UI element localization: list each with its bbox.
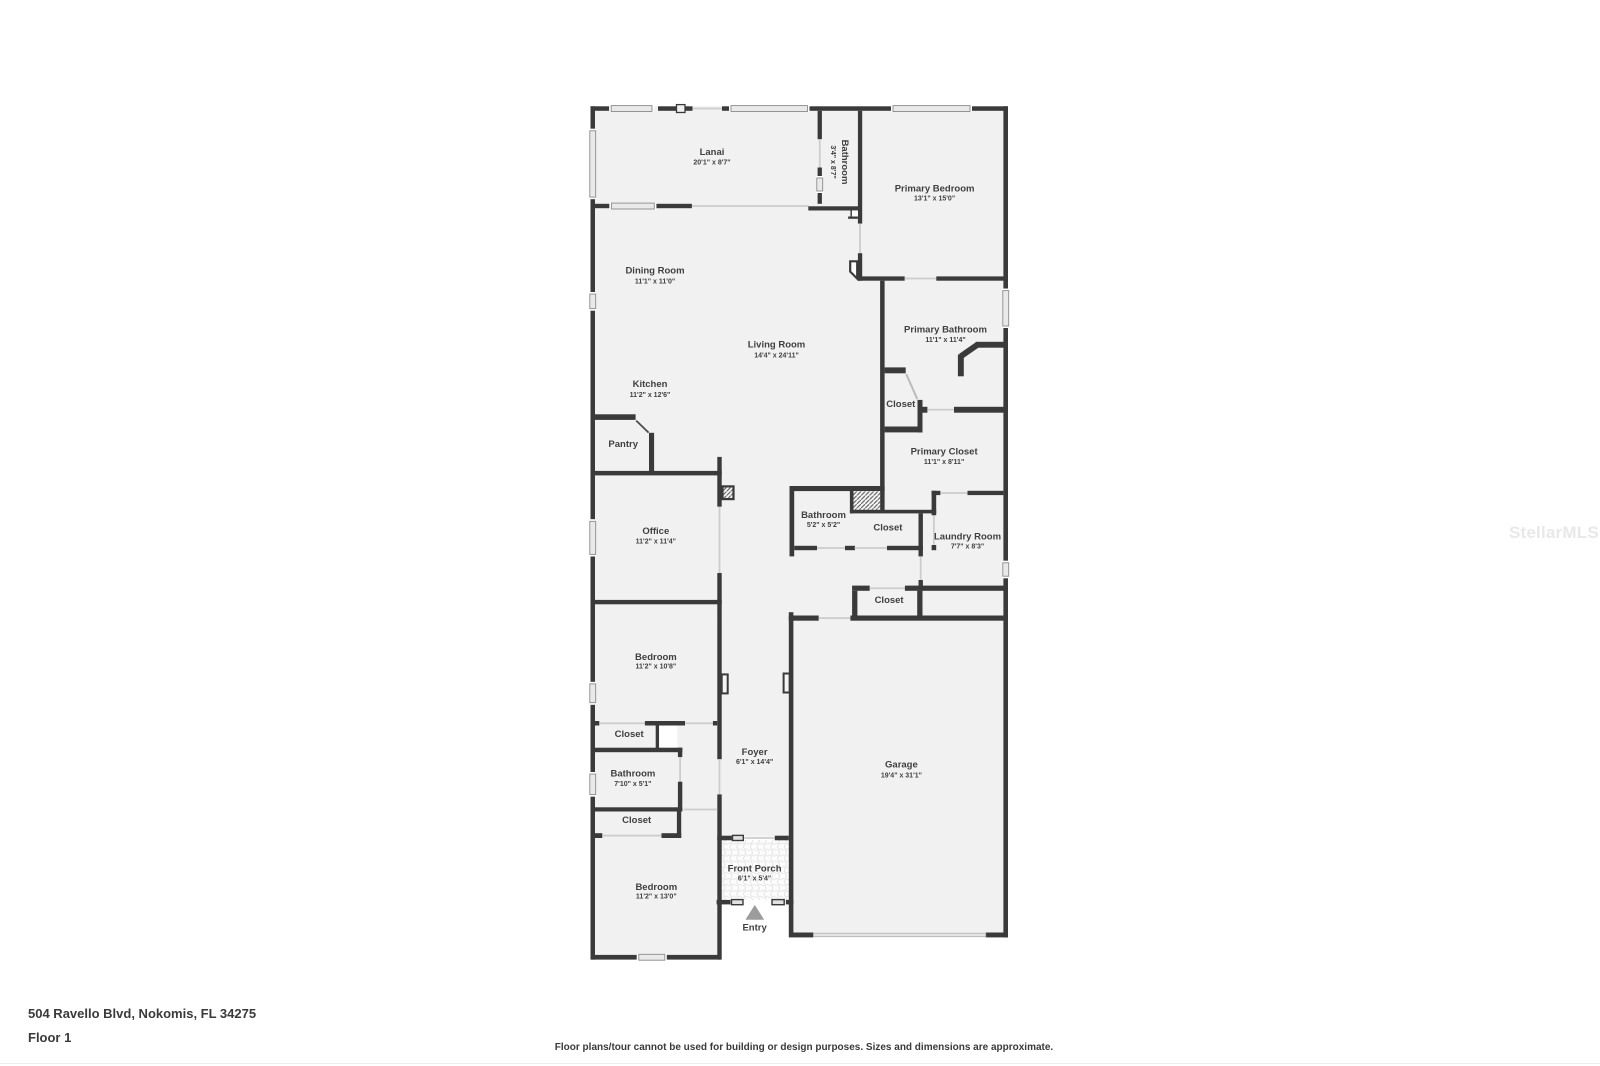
svg-text:Closet: Closet xyxy=(875,595,905,606)
svg-text:11'1" x 11'4": 11'1" x 11'4" xyxy=(925,337,965,344)
svg-text:Closet: Closet xyxy=(615,729,645,740)
svg-text:Bathroom: Bathroom xyxy=(839,140,850,185)
svg-text:Entry: Entry xyxy=(742,922,767,933)
svg-text:19'4" x 31'1": 19'4" x 31'1" xyxy=(881,772,922,779)
svg-text:11'1" x 8'11": 11'1" x 8'11" xyxy=(924,459,964,466)
svg-text:13'1" x 15'0": 13'1" x 15'0" xyxy=(914,196,955,203)
svg-text:5'2" x 5'2": 5'2" x 5'2" xyxy=(807,522,840,529)
svg-text:Primary Bedroom: Primary Bedroom xyxy=(895,183,975,194)
svg-text:Pantry: Pantry xyxy=(608,439,638,450)
svg-text:11'2" x 13'0": 11'2" x 13'0" xyxy=(636,894,677,901)
svg-text:Living Room: Living Room xyxy=(748,340,806,351)
svg-text:7'10" x 5'1": 7'10" x 5'1" xyxy=(614,781,651,788)
svg-text:11'2" x 12'6": 11'2" x 12'6" xyxy=(630,392,671,399)
svg-text:Laundry Room: Laundry Room xyxy=(934,532,1001,543)
svg-text:Primary Bathroom: Primary Bathroom xyxy=(904,324,987,335)
svg-text:11'1" x 11'0": 11'1" x 11'0" xyxy=(635,278,675,285)
svg-text:Bathroom: Bathroom xyxy=(801,510,846,521)
svg-text:Bedroom: Bedroom xyxy=(635,652,677,663)
svg-text:Primary Closet: Primary Closet xyxy=(911,447,979,458)
svg-text:Closet: Closet xyxy=(873,523,903,534)
svg-text:Front Porch: Front Porch xyxy=(728,863,782,874)
svg-text:14'4" x 24'11": 14'4" x 24'11" xyxy=(754,352,799,359)
svg-text:Bathroom: Bathroom xyxy=(610,769,655,780)
svg-text:6'1" x 5'4": 6'1" x 5'4" xyxy=(738,875,771,882)
svg-text:3'4" x 8'7": 3'4" x 8'7" xyxy=(829,145,836,178)
svg-text:Foyer: Foyer xyxy=(742,747,768,758)
svg-text:6'1" x 14'4": 6'1" x 14'4" xyxy=(736,759,773,766)
svg-text:Office: Office xyxy=(642,526,669,537)
svg-text:7'7" x 8'3": 7'7" x 8'3" xyxy=(951,544,984,551)
svg-text:11'2" x 10'8": 11'2" x 10'8" xyxy=(636,664,677,671)
svg-text:Closet: Closet xyxy=(886,399,916,410)
svg-text:Dining Room: Dining Room xyxy=(625,266,684,277)
svg-text:Bedroom: Bedroom xyxy=(635,882,677,893)
svg-text:20'1" x 8'7": 20'1" x 8'7" xyxy=(693,160,730,167)
svg-text:Lanai: Lanai xyxy=(700,147,725,158)
svg-text:11'2" x 11'4": 11'2" x 11'4" xyxy=(636,538,676,545)
svg-text:Garage: Garage xyxy=(885,760,918,771)
svg-text:Closet: Closet xyxy=(622,815,652,826)
svg-text:Kitchen: Kitchen xyxy=(633,379,668,390)
